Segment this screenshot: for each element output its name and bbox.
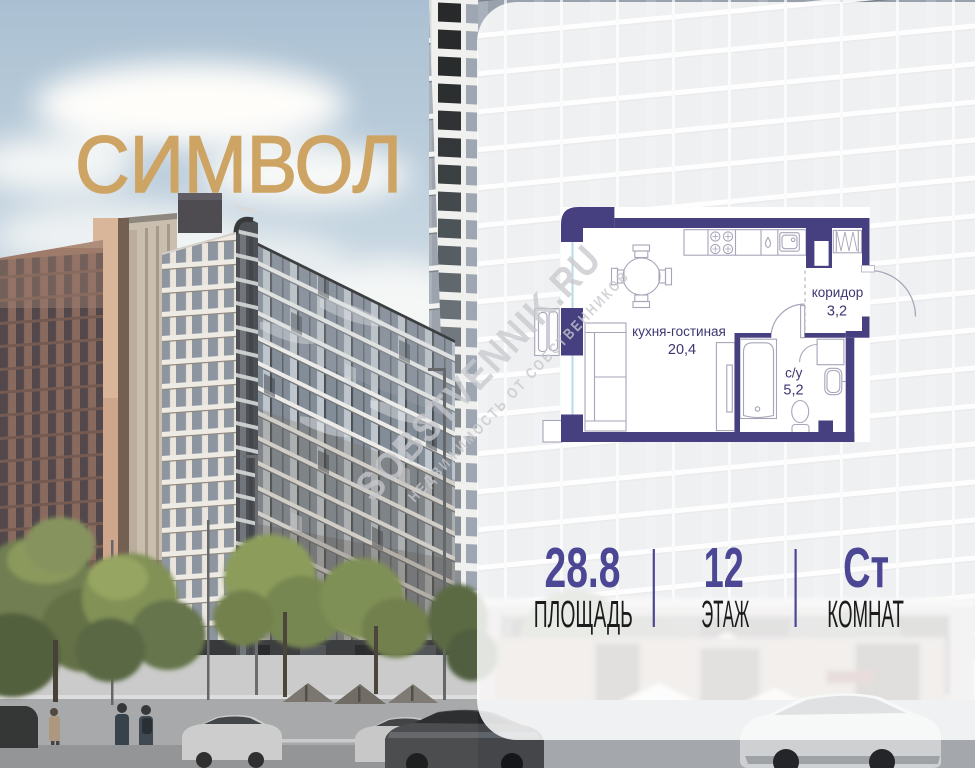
- svg-text:ПЛОЩАДЬ: ПЛОЩАДЬ: [534, 594, 633, 636]
- svg-text:с/у: с/у: [785, 366, 803, 381]
- svg-text:20,4: 20,4: [668, 342, 696, 358]
- svg-text:Ст: Ст: [843, 536, 889, 600]
- svg-text:3,2: 3,2: [827, 304, 847, 320]
- svg-text:ЭТАЖ: ЭТАЖ: [701, 594, 749, 636]
- svg-text:кухня-гостиная: кухня-гостиная: [632, 324, 726, 339]
- svg-text:28.8: 28.8: [545, 536, 621, 600]
- svg-text:12: 12: [704, 536, 744, 600]
- svg-text:КОМНАТ: КОМНАТ: [827, 594, 904, 636]
- svg-text:СИМВОЛ: СИМВОЛ: [75, 120, 402, 210]
- svg-text:коридор: коридор: [812, 285, 864, 300]
- svg-text:5,2: 5,2: [783, 383, 803, 399]
